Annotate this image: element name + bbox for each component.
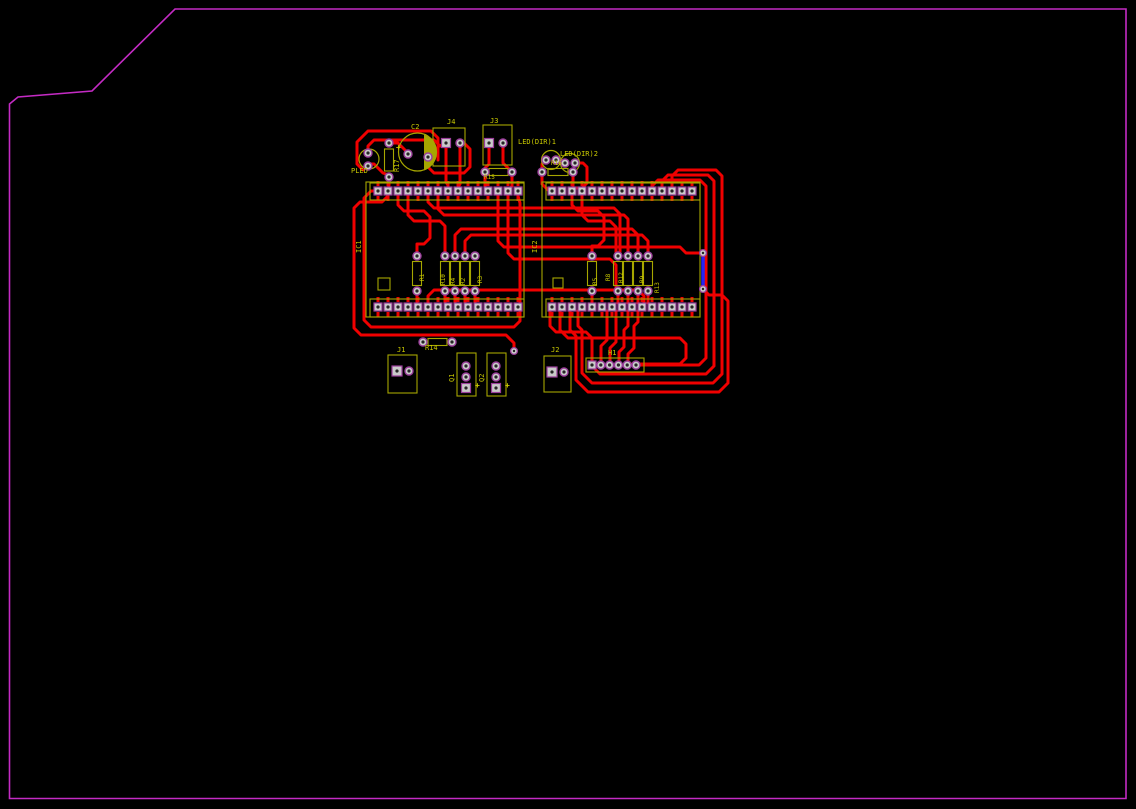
drill-hole [496,305,499,308]
drill-hole [702,252,704,254]
drill-hole [670,189,673,192]
drill-hole [443,289,446,292]
drill-hole [560,189,563,192]
drill-hole [636,289,639,292]
drill-hole [416,189,419,192]
drill-hole [626,254,629,257]
label-r9: R9 [640,276,646,283]
drill-hole [580,189,583,192]
drill-hole [660,305,663,308]
drill-hole [600,305,603,308]
drill-hole [464,364,467,367]
drill-hole [610,189,613,192]
drill-hole [620,189,623,192]
drill-hole [626,363,629,366]
drill-hole [600,189,603,192]
drill-hole [406,189,409,192]
drill-hole [516,189,519,192]
label-r15: R15 [484,175,495,181]
label-r10: R10 [441,274,447,285]
drill-hole [464,386,467,389]
drill-hole [690,189,693,192]
drill-hole [396,189,399,192]
label-ic2: IC2 [532,240,539,253]
drill-hole [608,363,611,366]
label-r2: R2 [461,278,467,285]
drill-hole [458,141,461,144]
label-r5: R5 [593,278,599,285]
label-r8: R8 [606,274,612,281]
pads-layer[interactable] [364,139,706,393]
drill-hole [406,152,409,155]
drill-hole [463,289,466,292]
label-q2: Q2 [479,374,486,382]
label-j4: J4 [447,119,455,126]
drill-hole [415,289,418,292]
drill-hole [443,254,446,257]
drill-hole [463,254,466,257]
drill-hole [407,369,410,372]
drill-hole [476,189,479,192]
ic2-pin1-marker [553,278,563,288]
label-h1: H1 [608,350,616,357]
q2-polarity-mark: + [505,382,510,390]
drill-hole [464,375,467,378]
label-j3: J3 [490,118,498,125]
drill-hole [513,350,515,352]
drill-hole [406,305,409,308]
drill-hole [376,305,379,308]
label-r4: R4 [451,278,457,285]
label-j1: J1 [397,347,405,354]
drill-hole [506,189,509,192]
drill-hole [640,189,643,192]
drill-hole [453,289,456,292]
drill-hole [473,254,476,257]
drill-hole [396,305,399,308]
copper-trace[interactable] [455,229,638,252]
drill-hole [466,189,469,192]
drill-hole [616,254,619,257]
label-r14: R14 [425,345,438,352]
label-j2: J2 [551,347,559,354]
drill-hole [453,254,456,257]
drill-hole [630,305,633,308]
drill-hole [510,170,513,173]
pcb-canvas[interactable]: PLED R17 C2 J4 J3 LED(DIR)1 LED(DIR)2 R1… [0,0,1136,809]
drill-hole [571,170,574,173]
drill-hole [501,141,504,144]
drill-hole [387,175,390,178]
drill-hole [640,305,643,308]
c2-polarity-mark: + [396,144,401,152]
ic1-pin1-marker [378,278,390,290]
drill-hole [590,189,593,192]
drill-hole [494,386,497,389]
drill-hole [646,254,649,257]
drill-hole [562,370,565,373]
drill-hole [415,254,418,257]
drill-hole [573,161,576,164]
board-outline [10,9,1127,799]
label-r13: R13 [655,282,661,293]
drill-hole [590,289,593,292]
drill-hole [570,189,573,192]
drill-hole [626,289,629,292]
drill-hole [450,340,453,343]
drill-hole [650,305,653,308]
drill-hole [416,305,419,308]
drill-hole [387,141,390,144]
drill-hole [544,158,547,161]
drill-hole [386,305,389,308]
drill-hole [386,189,389,192]
drill-hole [702,288,704,290]
drill-hole [494,364,497,367]
label-led-dir2: LED(DIR)2 [560,151,598,158]
drill-hole [426,189,429,192]
drill-hole [516,305,519,308]
drill-hole [446,189,449,192]
drill-hole [590,305,593,308]
drill-hole [560,305,563,308]
drill-hole [630,189,633,192]
label-led-dir1: LED(DIR)1 [518,139,556,146]
drill-hole [444,141,447,144]
drill-hole [446,305,449,308]
drill-hole [456,189,459,192]
q1-polarity-mark: + [475,382,480,390]
copper-trace[interactable] [601,311,607,361]
drill-hole [456,305,459,308]
drill-hole [395,369,398,372]
drill-hole [599,363,602,366]
drill-hole [550,189,553,192]
label-r3: R3 [478,276,484,283]
drill-hole [487,141,490,144]
drill-hole [660,189,663,192]
label-q1: Q1 [449,374,456,382]
drill-hole [466,305,469,308]
drill-hole [620,305,623,308]
drill-hole [486,305,489,308]
drill-hole [680,305,683,308]
drill-hole [650,189,653,192]
drill-hole [680,189,683,192]
drill-hole [646,289,649,292]
drill-hole [690,305,693,308]
drill-hole [550,305,553,308]
drill-hole [486,189,489,192]
drill-hole [540,170,543,173]
drill-hole [670,305,673,308]
drill-hole [436,305,439,308]
drill-hole [473,289,476,292]
drill-hole [617,363,620,366]
drill-hole [610,305,613,308]
drill-hole [426,155,429,158]
label-r17: R17 [394,159,401,172]
drill-hole [636,254,639,257]
label-r16: R16 [551,161,562,167]
board-layers [0,0,1136,809]
drill-hole [426,305,429,308]
drill-hole [590,363,593,366]
drill-hole [616,289,619,292]
drill-hole [563,161,566,164]
drill-hole [476,305,479,308]
drill-hole [570,305,573,308]
drill-hole [506,305,509,308]
label-r1: R1 [420,274,426,281]
label-pled: PLED [351,168,368,175]
drill-hole [590,254,593,257]
drill-hole [496,189,499,192]
drill-hole [634,363,637,366]
label-ic1: IC1 [356,240,363,253]
drill-hole [494,375,497,378]
board-edge [10,9,1127,799]
drill-hole [550,370,553,373]
drill-hole [376,189,379,192]
label-r12: R12 [619,272,625,283]
drill-hole [580,305,583,308]
drill-hole [366,151,369,154]
label-c2: C2 [411,124,419,131]
drill-hole [436,189,439,192]
